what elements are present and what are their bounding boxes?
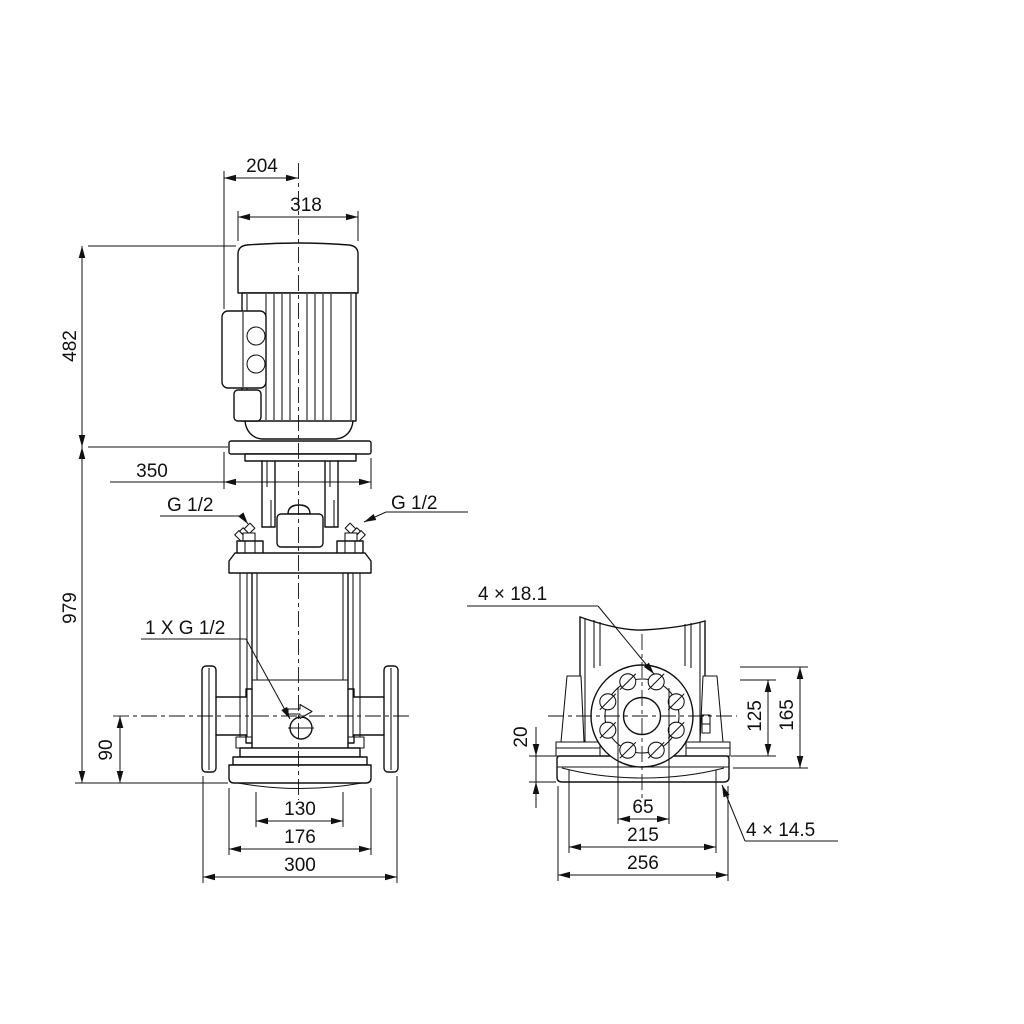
dim-20: 20 xyxy=(511,726,556,808)
terminal-box-lower xyxy=(234,390,261,421)
leader-line xyxy=(364,512,386,522)
support-gusset xyxy=(561,676,584,742)
side-view xyxy=(556,617,730,782)
support-pad xyxy=(686,742,730,756)
nameplate-clip xyxy=(702,724,710,733)
pump-dimensional-drawing: 204 318 482 979 350 90 xyxy=(0,0,1024,1024)
label-plug-right: G 1/2 xyxy=(364,493,468,522)
dim-text: 256 xyxy=(627,853,659,874)
shaft-dome xyxy=(288,505,310,514)
dim-text: 482 xyxy=(60,330,81,362)
dim-text: 204 xyxy=(246,156,278,177)
base-block-mid xyxy=(233,757,367,765)
base-block-upper xyxy=(240,748,360,757)
dim-text: 90 xyxy=(96,739,117,760)
cable-entry-hole xyxy=(247,355,265,373)
label-text: G 1/2 xyxy=(167,495,213,516)
label-plug-left: G 1/2 xyxy=(160,495,248,524)
bolt-stud xyxy=(243,533,255,541)
label-text: 4 × 14.5 xyxy=(746,820,815,841)
pump-base xyxy=(229,748,371,789)
motor-flange xyxy=(229,441,371,461)
base-plate xyxy=(229,765,371,783)
dim-text: 318 xyxy=(290,195,322,216)
dim-text: 125 xyxy=(745,700,766,732)
sleeve-break-line xyxy=(580,617,705,630)
dim-text: 130 xyxy=(284,799,316,820)
dim-125: 125 xyxy=(731,680,776,756)
dim-text: 979 xyxy=(60,592,81,624)
motor-flange-plate xyxy=(229,441,371,454)
terminal-box xyxy=(222,311,266,421)
dim-text: 350 xyxy=(136,461,168,482)
dim-text: 20 xyxy=(511,726,532,747)
pump-head-plate xyxy=(229,553,371,573)
coupling-block xyxy=(277,514,323,547)
dim-text: 65 xyxy=(632,797,653,818)
drain-plug xyxy=(288,705,314,740)
bolt-hex xyxy=(337,541,363,554)
dim-text: 176 xyxy=(284,827,316,848)
dim-text: 165 xyxy=(777,699,798,731)
dim-90: 90 xyxy=(96,716,120,783)
label-text: 4 × 18.1 xyxy=(478,584,547,605)
dim-text: 300 xyxy=(284,855,316,876)
motor-bell xyxy=(245,421,353,439)
base-rim-curve xyxy=(238,783,362,789)
bolt-stud xyxy=(345,533,357,541)
dim-482: 482 xyxy=(60,246,236,447)
bolt-hex xyxy=(237,541,263,554)
dim-130: 130 xyxy=(256,792,343,827)
label-text: G 1/2 xyxy=(391,493,437,514)
dim-text: 215 xyxy=(627,825,659,846)
drawing-page: 204 318 482 979 350 90 xyxy=(0,0,1024,1024)
support-pad xyxy=(556,742,600,756)
cable-entry-hole xyxy=(247,327,265,345)
motor-flange-spacer xyxy=(245,454,356,461)
motor-fan-cover xyxy=(238,243,358,293)
label-text: 1 X G 1/2 xyxy=(145,618,225,639)
terminal-box-body xyxy=(222,311,266,388)
leader-line xyxy=(598,606,654,674)
leader-line xyxy=(722,785,745,841)
label-base-holes: 4 × 14.5 xyxy=(722,785,838,841)
dim-318: 318 xyxy=(238,195,358,241)
leader-line xyxy=(242,516,248,524)
coupling xyxy=(277,505,323,547)
